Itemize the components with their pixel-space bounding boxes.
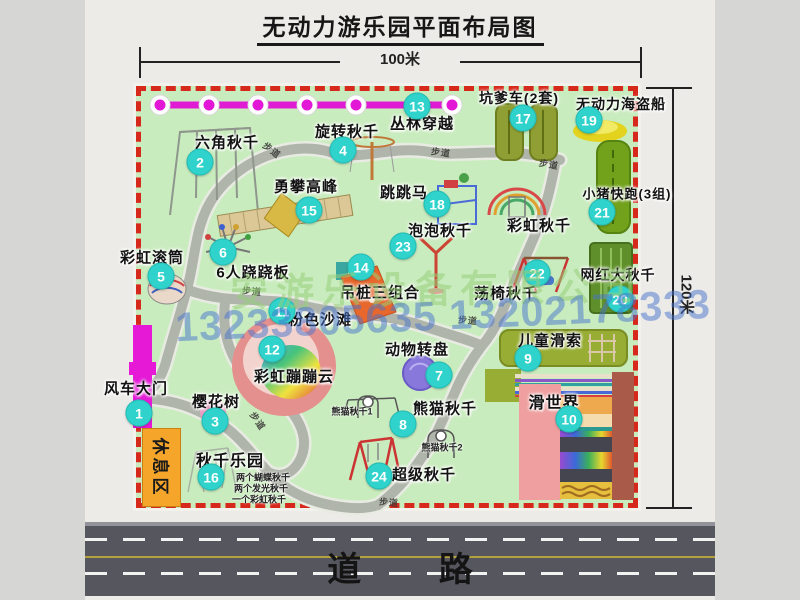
road: 道 路 bbox=[85, 522, 715, 596]
item-label: 勇攀高峰 bbox=[274, 176, 338, 197]
item-number-badge: 18 bbox=[424, 191, 451, 218]
item-number-badge: 5 bbox=[148, 263, 175, 290]
item-label: 跳跳马 bbox=[380, 182, 428, 203]
item-number-badge: 24 bbox=[366, 463, 393, 490]
item-number-badge: 15 bbox=[296, 197, 323, 224]
item-number-badge: 2 bbox=[187, 149, 214, 176]
item-number-badge: 1 bbox=[126, 400, 153, 427]
footpath-label: 步道 bbox=[260, 139, 284, 162]
item-number-badge: 4 bbox=[330, 137, 357, 164]
item-number-badge: 10 bbox=[556, 406, 583, 433]
item-number-badge: 19 bbox=[576, 107, 603, 134]
item-number-badge: 3 bbox=[202, 408, 229, 435]
footpath-label: 步道 bbox=[378, 495, 399, 510]
item-label: 彩虹蹦蹦云 bbox=[254, 366, 334, 387]
item-sub-label: 熊猫秋千1 bbox=[331, 405, 372, 418]
item-label: 风车大门 bbox=[104, 378, 168, 399]
item-number-badge: 16 bbox=[198, 464, 225, 491]
item-number-badge: 17 bbox=[510, 105, 537, 132]
item-sub-label: 熊猫秋千2 bbox=[421, 441, 462, 454]
item-number-badge: 13 bbox=[404, 93, 431, 120]
item-label: 彩虹秋千 bbox=[507, 215, 571, 236]
item-number-badge: 7 bbox=[426, 362, 453, 389]
item-sub-label: 一个彩虹秋千 bbox=[232, 493, 286, 506]
item-label: 熊猫秋千 bbox=[413, 398, 477, 419]
item-number-badge: 9 bbox=[515, 345, 542, 372]
item-label: 泡泡秋千 bbox=[408, 220, 472, 241]
road-label: 道 路 bbox=[85, 542, 715, 591]
item-number-badge: 21 bbox=[589, 199, 616, 226]
item-label: 超级秋千 bbox=[392, 464, 456, 485]
footpath-label: 步道 bbox=[247, 409, 269, 433]
road-lane-line bbox=[85, 538, 715, 541]
footpath-label: 步道 bbox=[430, 144, 452, 160]
footpath-label: 步道 bbox=[538, 156, 560, 172]
screenshot-root: 无动力游乐园平面布局图 bbox=[0, 0, 800, 600]
item-number-badge: 23 bbox=[390, 233, 417, 260]
item-number-badge: 8 bbox=[390, 411, 417, 438]
